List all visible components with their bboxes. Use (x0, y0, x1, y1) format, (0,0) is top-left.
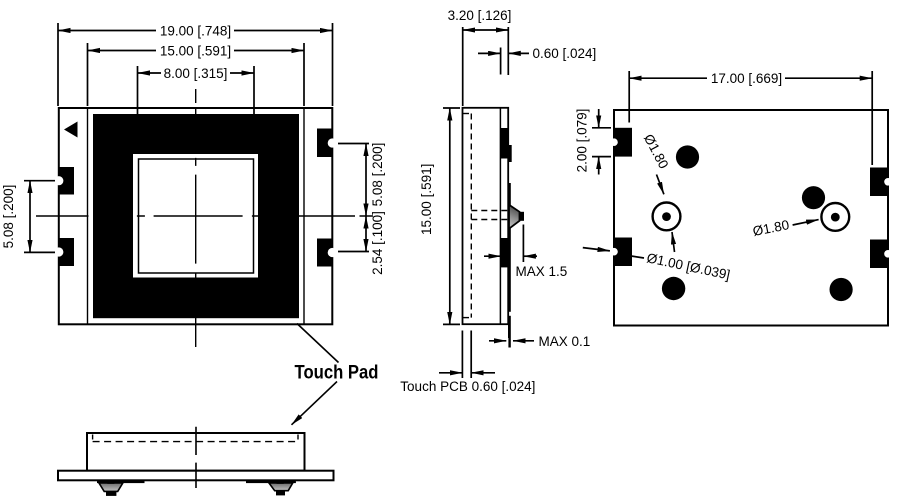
svg-text:15.00 [.591]: 15.00 [.591] (419, 164, 434, 235)
svg-text:5.08 [.200]: 5.08 [.200] (370, 143, 385, 207)
svg-text:2.54 [.100]: 2.54 [.100] (370, 211, 385, 275)
svg-text:3.20 [.126]: 3.20 [.126] (448, 8, 512, 23)
svg-text:Touch Pad: Touch Pad (295, 363, 379, 384)
svg-text:8.00 [.315]: 8.00 [.315] (164, 66, 228, 81)
svg-text:2.00 [.079]: 2.00 [.079] (575, 109, 590, 173)
svg-text:15.00 [.591]: 15.00 [.591] (160, 43, 231, 58)
svg-text:5.08 [.200]: 5.08 [.200] (1, 185, 16, 249)
svg-text:MAX 1.5: MAX 1.5 (516, 264, 568, 279)
svg-text:19.00 [.748]: 19.00 [.748] (160, 23, 231, 38)
svg-text:0.60 [.024]: 0.60 [.024] (533, 46, 597, 61)
svg-text:Touch PCB 0.60 [.024]: Touch PCB 0.60 [.024] (400, 379, 535, 394)
svg-text:MAX 0.1: MAX 0.1 (539, 334, 591, 349)
svg-text:17.00 [.669]: 17.00 [.669] (711, 71, 782, 86)
